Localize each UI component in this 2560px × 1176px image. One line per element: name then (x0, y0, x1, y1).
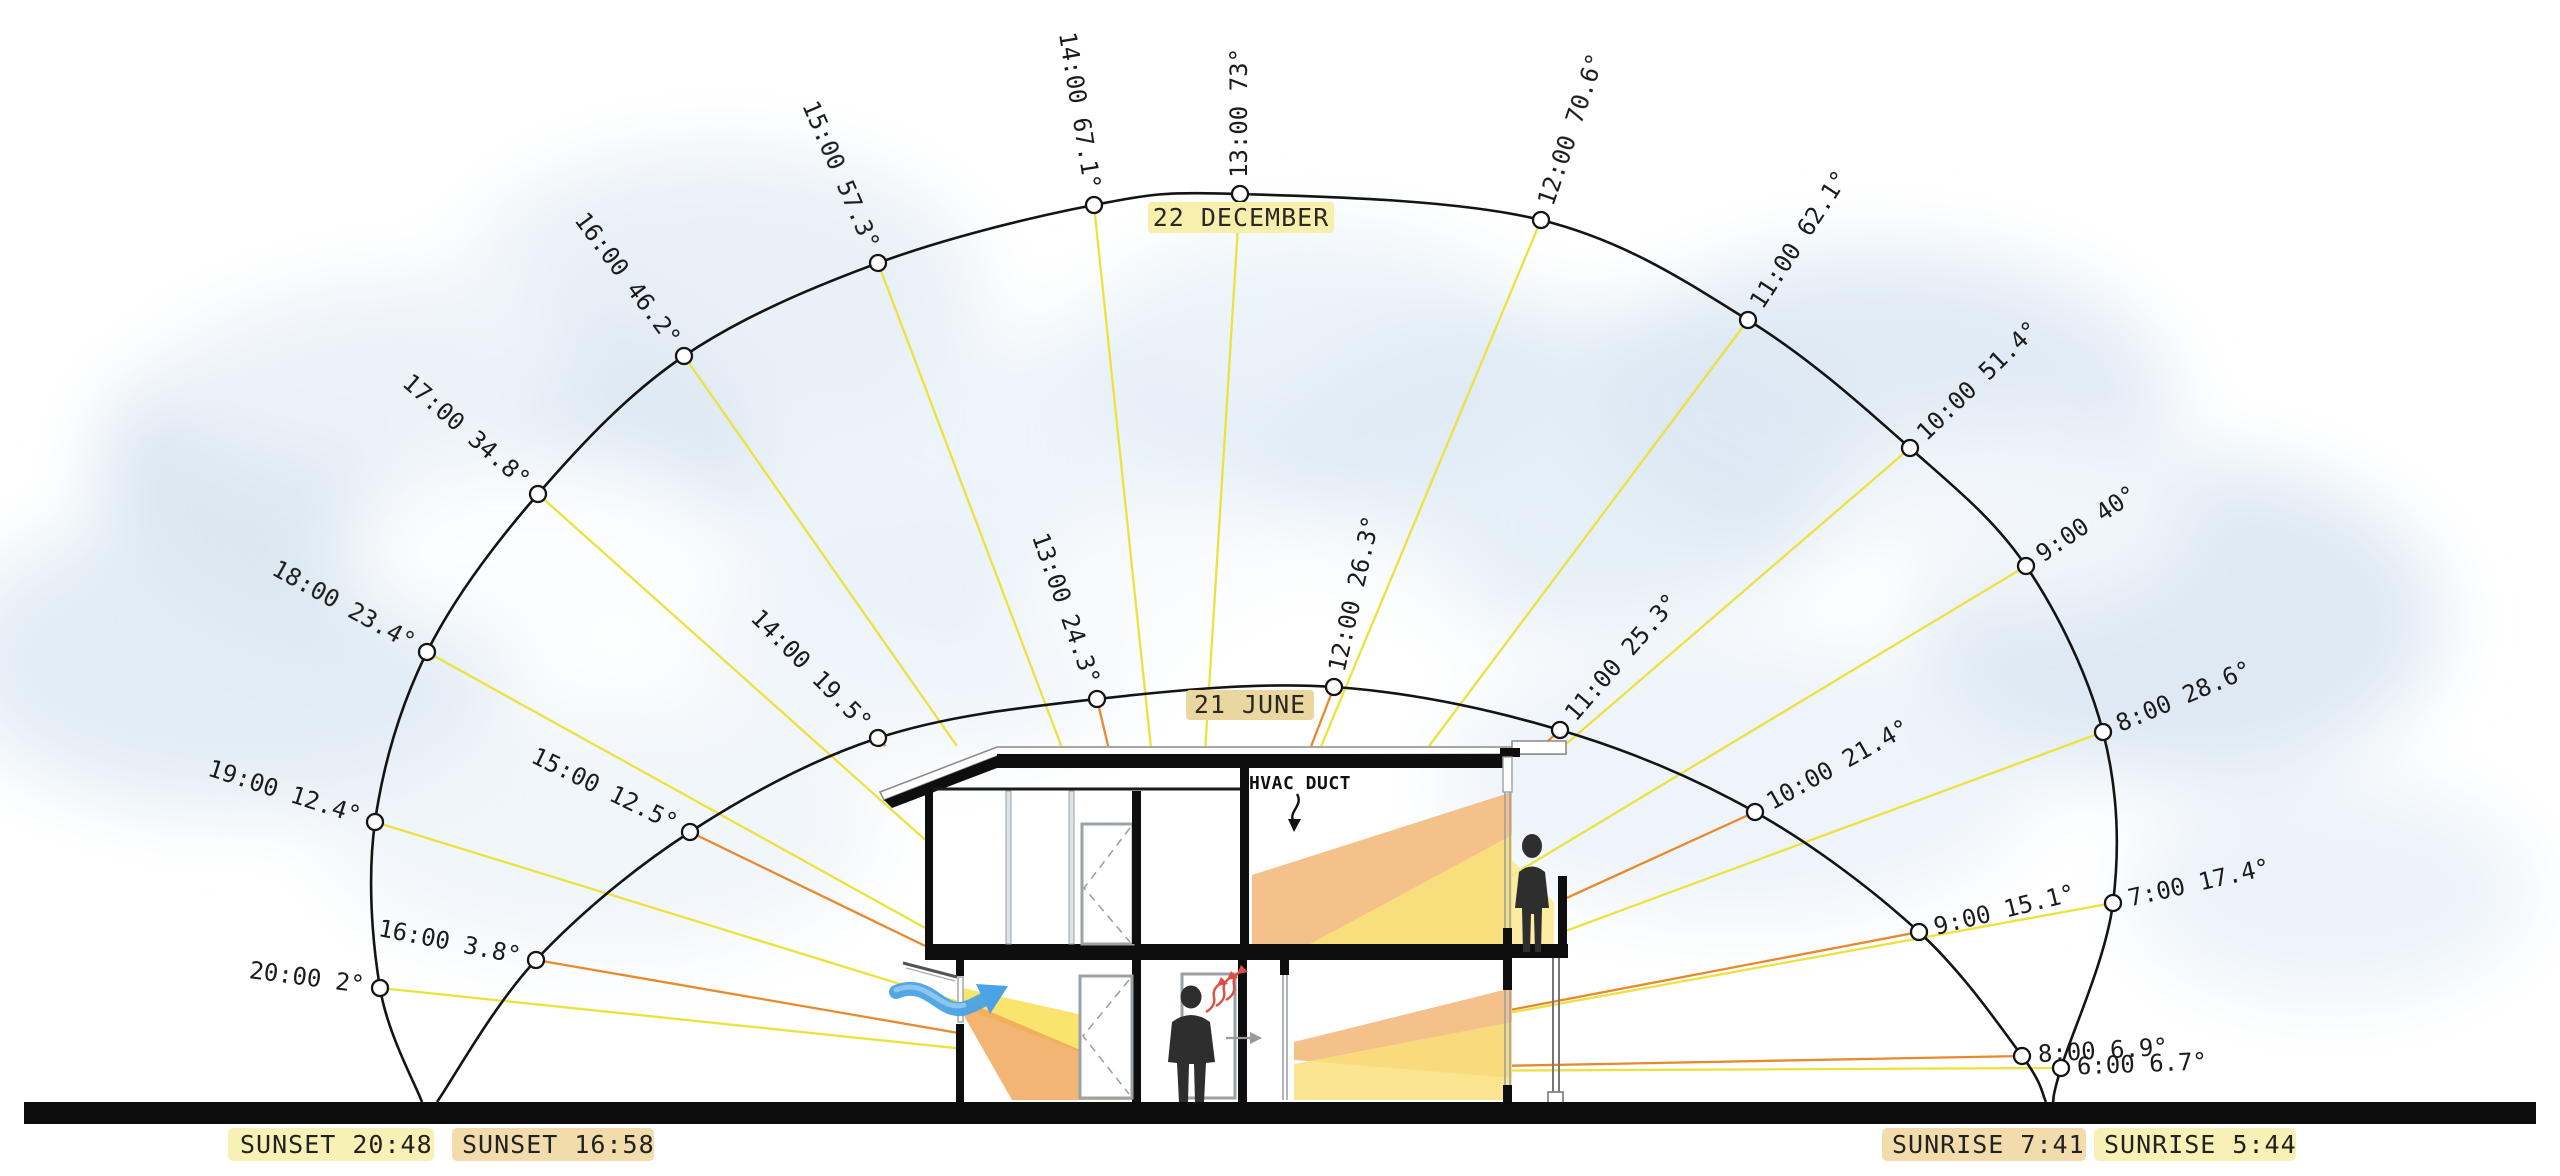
roof-right-step (1512, 741, 1566, 754)
right-wall-lower-sill (1503, 1085, 1512, 1103)
sun-hour-label: 13:00 73° (1225, 48, 1253, 178)
sun-hour-marker (1552, 722, 1568, 738)
sunrise-december-label: SUNRISE 5:44 (2104, 1130, 2297, 1159)
sunset-december-label: SUNSET 20:48 (240, 1130, 433, 1159)
upper-partition-wall-1 (1132, 791, 1141, 944)
sun-hour-marker (528, 952, 544, 968)
sun-hour-marker (1533, 212, 1549, 228)
hall-glass-stub (1280, 955, 1289, 975)
sun-hour-marker (1747, 804, 1763, 820)
sun-hour-marker (1740, 312, 1756, 328)
ground-bar (24, 1102, 2536, 1124)
june-tag-label: 21 JUNE (1194, 690, 1306, 719)
sun-hour-marker (870, 255, 886, 271)
sun-hour-marker (1902, 440, 1918, 456)
sun-hour-marker (2014, 1048, 2030, 1064)
door-frame-upper (1082, 824, 1133, 944)
roof-slab (997, 754, 1512, 768)
sun-hour-marker (1089, 691, 1105, 707)
sun-hour-marker (1232, 186, 1248, 202)
sun-hour-marker (372, 980, 388, 996)
sun-hour-marker (367, 814, 383, 830)
sun-hour-marker (870, 730, 886, 746)
balcony-railing (1558, 876, 1567, 958)
door-frame-lowerleft (1080, 976, 1132, 1098)
december-tag-label: 22 DECEMBER (1153, 203, 1330, 232)
sky-background (0, 0, 2560, 1176)
sun-path-diagram: 20:00 2°19:00 12.4°18:00 23.4°17:00 34.8… (0, 0, 2560, 1176)
season-tag-december: 22 DECEMBER (1148, 202, 1334, 233)
sun-hour-marker (2095, 724, 2111, 740)
sun-hour-marker (1911, 924, 1927, 940)
floor-slab (925, 944, 1512, 960)
roof-right-cap (1500, 748, 1520, 757)
lowerleft-wall-stub (956, 950, 964, 976)
sun-hour-marker (682, 824, 698, 840)
sunset-june-label: SUNSET 16:58 (462, 1130, 655, 1159)
lower-partition-wall-2 (1238, 960, 1247, 1103)
sunrise-june-label: SUNRISE 7:41 (1892, 1130, 2085, 1159)
sun-hour-marker (1086, 197, 1102, 213)
hvac-duct-label: HVAC DUCT (1249, 773, 1351, 794)
season-tag-june: 21 JUNE (1186, 690, 1314, 720)
closet-panel-line (1069, 791, 1074, 944)
sun-hour-marker (676, 348, 692, 364)
upper-left-wall (925, 790, 933, 944)
sun-hour-marker (2105, 895, 2121, 911)
sun-hour-marker (1326, 679, 1342, 695)
sun-hour-marker (419, 644, 435, 660)
sun-hour-marker (530, 486, 546, 502)
lowerleft-wall (956, 1024, 964, 1103)
sun-hour-marker (2018, 558, 2034, 574)
balcony-column-base (1548, 1092, 1563, 1103)
closet-panel-line (1006, 791, 1011, 944)
right-wall-upper-white (1503, 757, 1512, 792)
upper-partition-wall-2 (1240, 766, 1249, 944)
